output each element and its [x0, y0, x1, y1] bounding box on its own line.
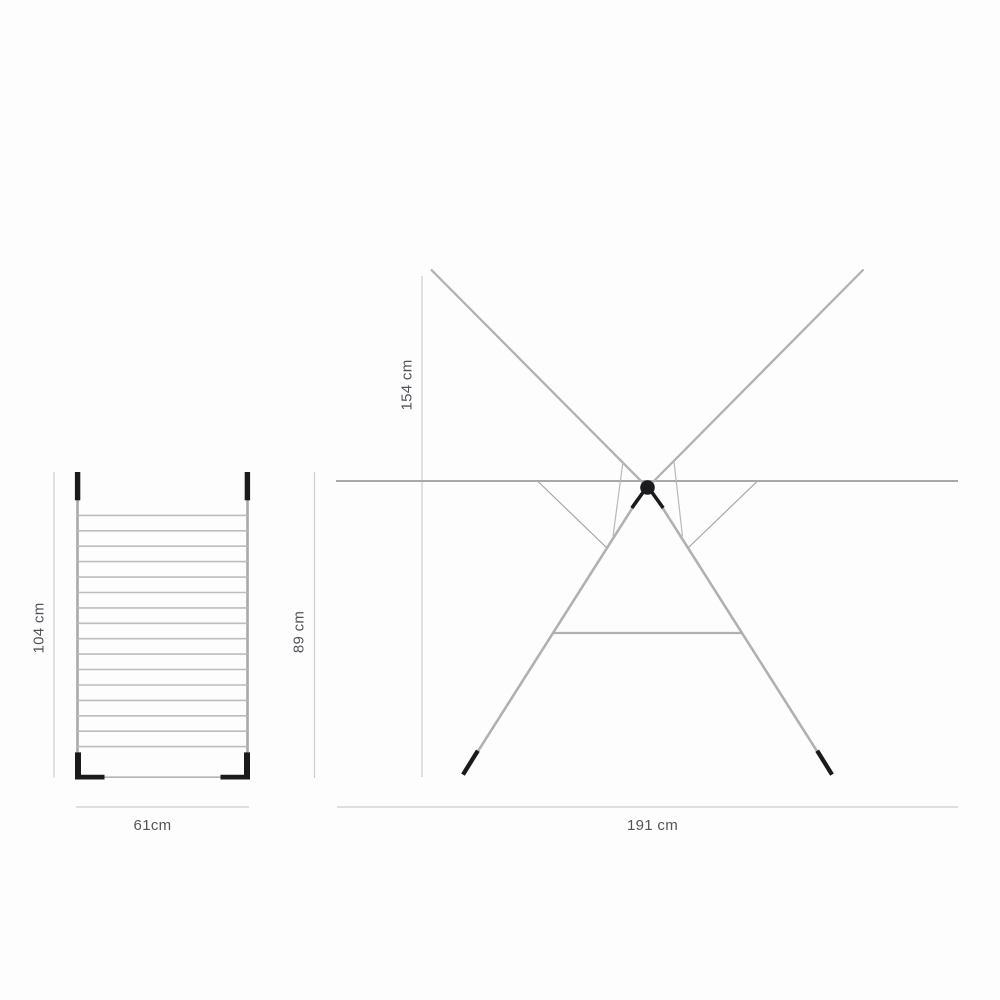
svg-text:154 cm: 154 cm — [399, 360, 416, 411]
svg-text:191 cm: 191 cm — [627, 817, 678, 834]
svg-text:89 cm: 89 cm — [291, 611, 308, 653]
svg-text:104 cm: 104 cm — [31, 603, 48, 654]
svg-text:61cm: 61cm — [134, 817, 172, 834]
